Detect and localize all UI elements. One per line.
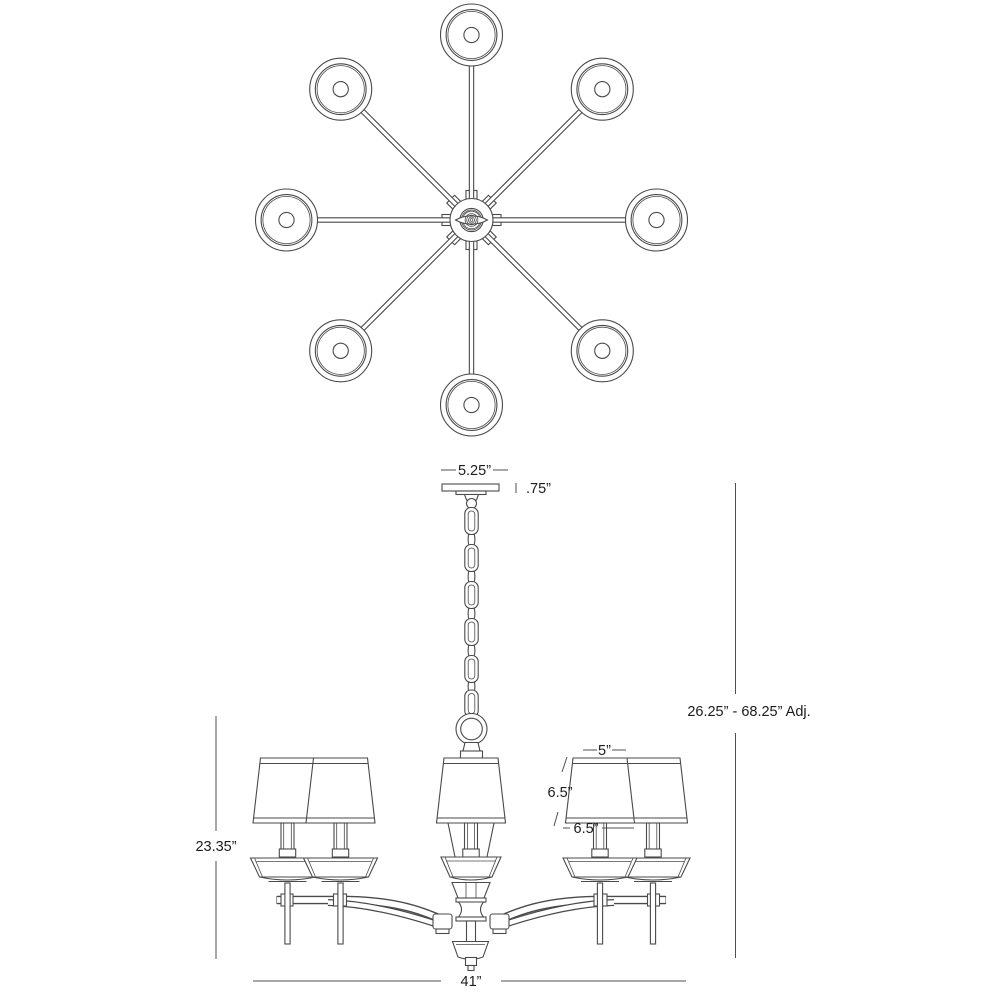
hanging-ring [456,714,487,759]
center-shade [437,758,506,823]
arm-s [466,241,477,374]
dim-overall-height: 26.25” - 68.25” Adj. [687,483,810,958]
bottom-bowl-finial [453,942,489,971]
hub [450,199,493,242]
top-view [256,4,688,436]
side-light-inner-right [563,758,637,944]
center-stem [467,921,476,943]
center-bobeche [441,857,501,880]
dim-canopy-width-label: 5.25” [458,463,491,479]
dim-shade-top: 5” [583,743,626,759]
shade-circle-e [626,189,688,251]
shade-circle-n [441,4,503,66]
arm-e [493,215,626,226]
dim-canopy-height: .75” [516,481,551,497]
chain-link [465,656,478,683]
chain-link [465,508,478,535]
center-candle [465,823,478,851]
chain-link [465,619,478,646]
arm-end-cap [433,914,452,929]
chain [465,508,478,718]
arm-end-cap [490,914,509,929]
arm-se [482,231,584,333]
arm-nw [359,107,461,209]
shade-circle-s [441,374,503,436]
dim-overall-height-label: 26.25” - 68.25” Adj. [687,704,810,720]
dim-canopy-height-label: .75” [526,481,551,497]
dim-shade-height-label: 6.5” [548,785,573,801]
dim-overall-width: 41” [253,974,686,990]
dim-canopy-width: 5.25” [441,463,508,479]
arm-n [466,66,477,199]
shade-circle-nw [310,58,372,120]
arm-w [318,215,451,226]
arm-ne [482,107,584,209]
hourglass-spacer [459,902,484,917]
chain-link [465,545,478,572]
shade-circle-ne [571,58,633,120]
canopy [442,484,499,509]
spec-sheet: 5.25” .75” 26.25” - 68.25” Adj. 23.35” 5… [0,0,1000,1000]
shade-circle-w [256,189,318,251]
dim-body-height: 23.35” [195,716,236,959]
dim-overall-width-label: 41” [461,974,482,990]
chandelier-spec-diagram: 5.25” .75” 26.25” - 68.25” Adj. 23.35” 5… [0,0,1000,1000]
dim-body-height-label: 23.35” [195,839,236,855]
shade-circle-sw [310,320,372,382]
dim-shade-top-label: 5” [598,743,611,759]
arm-sw [359,231,461,333]
center-column [433,758,509,971]
shade-circle-se [571,320,633,382]
side-view [251,484,691,971]
crystal-cone [452,883,490,899]
side-light-inner-left [304,758,378,944]
chain-link [465,582,478,609]
dim-shade-bottom-label: 6.5” [574,821,599,837]
